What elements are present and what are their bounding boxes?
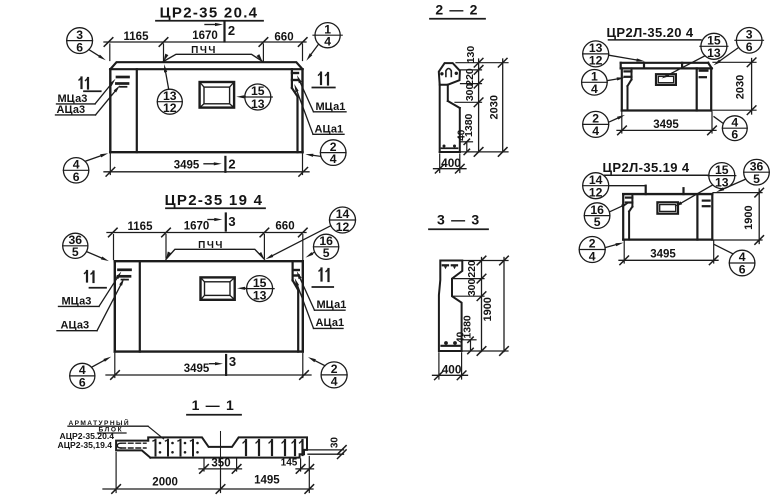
svg-text:ЦР2-35 19 4: ЦР2-35 19 4	[165, 192, 264, 209]
svg-text:12: 12	[589, 54, 603, 68]
svg-text:6: 6	[73, 170, 80, 184]
svg-text:145: 145	[281, 457, 298, 468]
svg-text:13: 13	[251, 97, 265, 111]
svg-text:6: 6	[746, 40, 753, 54]
svg-text:6: 6	[739, 263, 746, 277]
svg-text:3495: 3495	[184, 363, 210, 375]
svg-text:660: 660	[275, 221, 294, 233]
svg-text:4: 4	[589, 249, 596, 263]
svg-text:МЦа3: МЦа3	[62, 296, 92, 308]
svg-text:4: 4	[591, 82, 598, 96]
svg-text:ПЧЧ: ПЧЧ	[191, 45, 217, 56]
svg-text:1900: 1900	[482, 297, 494, 321]
svg-text:6: 6	[79, 375, 86, 389]
svg-text:АЦа3: АЦа3	[57, 104, 86, 116]
svg-text:ЦР2Л-35.20 4: ЦР2Л-35.20 4	[606, 25, 693, 40]
svg-text:3: 3	[229, 354, 236, 369]
svg-text:2030: 2030	[488, 95, 500, 119]
svg-text:40: 40	[456, 129, 467, 141]
svg-text:АЦР2-35,19.4: АЦР2-35,19.4	[58, 440, 113, 450]
svg-text:3495: 3495	[650, 248, 676, 260]
svg-text:ПЧЧ: ПЧЧ	[198, 240, 224, 251]
svg-text:1670: 1670	[192, 30, 218, 42]
svg-text:2000: 2000	[152, 476, 178, 488]
svg-text:400: 400	[442, 363, 462, 377]
svg-text:13: 13	[707, 46, 721, 60]
svg-text:2 — 2: 2 — 2	[435, 2, 478, 18]
svg-text:1165: 1165	[124, 31, 150, 43]
svg-text:13: 13	[253, 288, 267, 302]
svg-text:4: 4	[331, 375, 338, 389]
svg-text:130: 130	[465, 46, 477, 64]
svg-text:ЦР2Л-35.19 4: ЦР2Л-35.19 4	[602, 160, 689, 175]
svg-text:1165: 1165	[128, 221, 154, 233]
svg-text:5: 5	[753, 172, 760, 186]
svg-text:1495: 1495	[254, 475, 280, 487]
svg-text:3495: 3495	[174, 159, 200, 171]
svg-text:1670: 1670	[184, 221, 210, 233]
svg-text:1 — 1: 1 — 1	[192, 397, 235, 413]
svg-text:4: 4	[330, 152, 337, 166]
svg-text:12: 12	[163, 101, 177, 115]
svg-text:ЦР2-35 20.4: ЦР2-35 20.4	[160, 5, 259, 22]
svg-text:6: 6	[76, 40, 83, 54]
svg-text:6: 6	[731, 127, 738, 141]
svg-text:4: 4	[324, 35, 331, 49]
svg-text:3: 3	[228, 214, 235, 229]
svg-text:2: 2	[228, 23, 235, 38]
svg-text:2: 2	[228, 157, 235, 172]
svg-text:МЦа1: МЦа1	[317, 299, 347, 311]
svg-text:12: 12	[589, 186, 603, 200]
svg-text:4: 4	[592, 124, 599, 138]
svg-text:300: 300	[466, 278, 478, 296]
svg-text:1900: 1900	[743, 205, 755, 229]
svg-text:АЦа3: АЦа3	[61, 320, 90, 332]
svg-text:АЦа1: АЦа1	[316, 317, 345, 329]
svg-text:3495: 3495	[653, 119, 679, 131]
svg-text:220: 220	[464, 68, 476, 86]
svg-text:40: 40	[456, 331, 467, 343]
svg-text:5: 5	[594, 215, 601, 229]
svg-text:30: 30	[330, 437, 341, 449]
svg-text:660: 660	[274, 32, 293, 44]
svg-text:5: 5	[323, 246, 330, 260]
svg-text:2030: 2030	[735, 75, 747, 99]
svg-text:АЦа1: АЦа1	[315, 123, 344, 135]
svg-text:400: 400	[441, 156, 461, 170]
svg-text:АРМАТУРНЫЙ: АРМАТУРНЫЙ	[69, 418, 130, 427]
svg-text:300: 300	[464, 83, 476, 101]
svg-text:12: 12	[336, 220, 350, 234]
svg-text:220: 220	[466, 260, 478, 278]
svg-text:МЦа1: МЦа1	[316, 101, 346, 113]
svg-text:5: 5	[72, 245, 79, 259]
svg-text:3 — 3: 3 — 3	[437, 212, 480, 228]
svg-text:350: 350	[211, 457, 230, 469]
